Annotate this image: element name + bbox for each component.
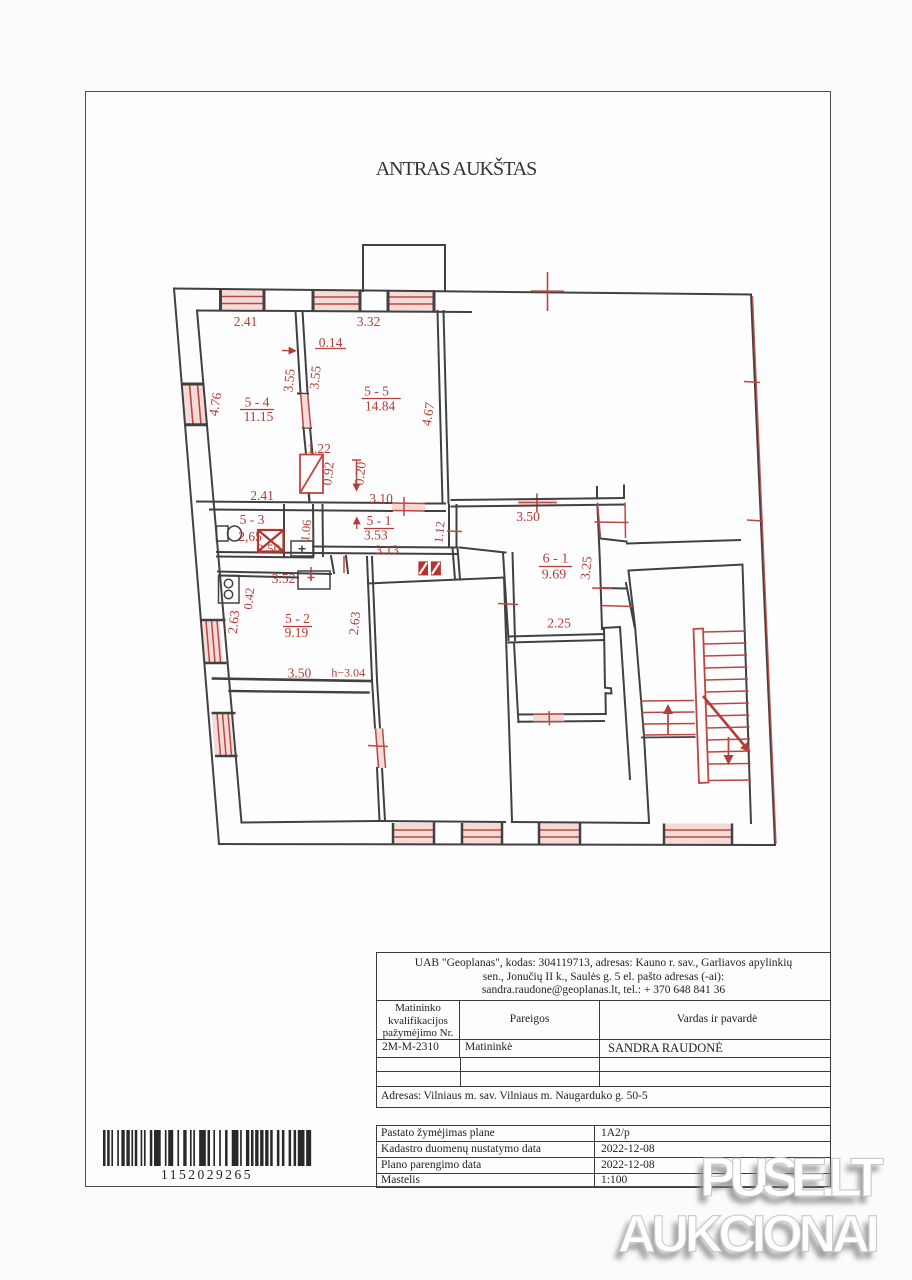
svg-text:PUSE.LT: PUSE.LT (700, 1146, 884, 1208)
svg-text:AUKCIONAI: AUKCIONAI (618, 1206, 880, 1264)
